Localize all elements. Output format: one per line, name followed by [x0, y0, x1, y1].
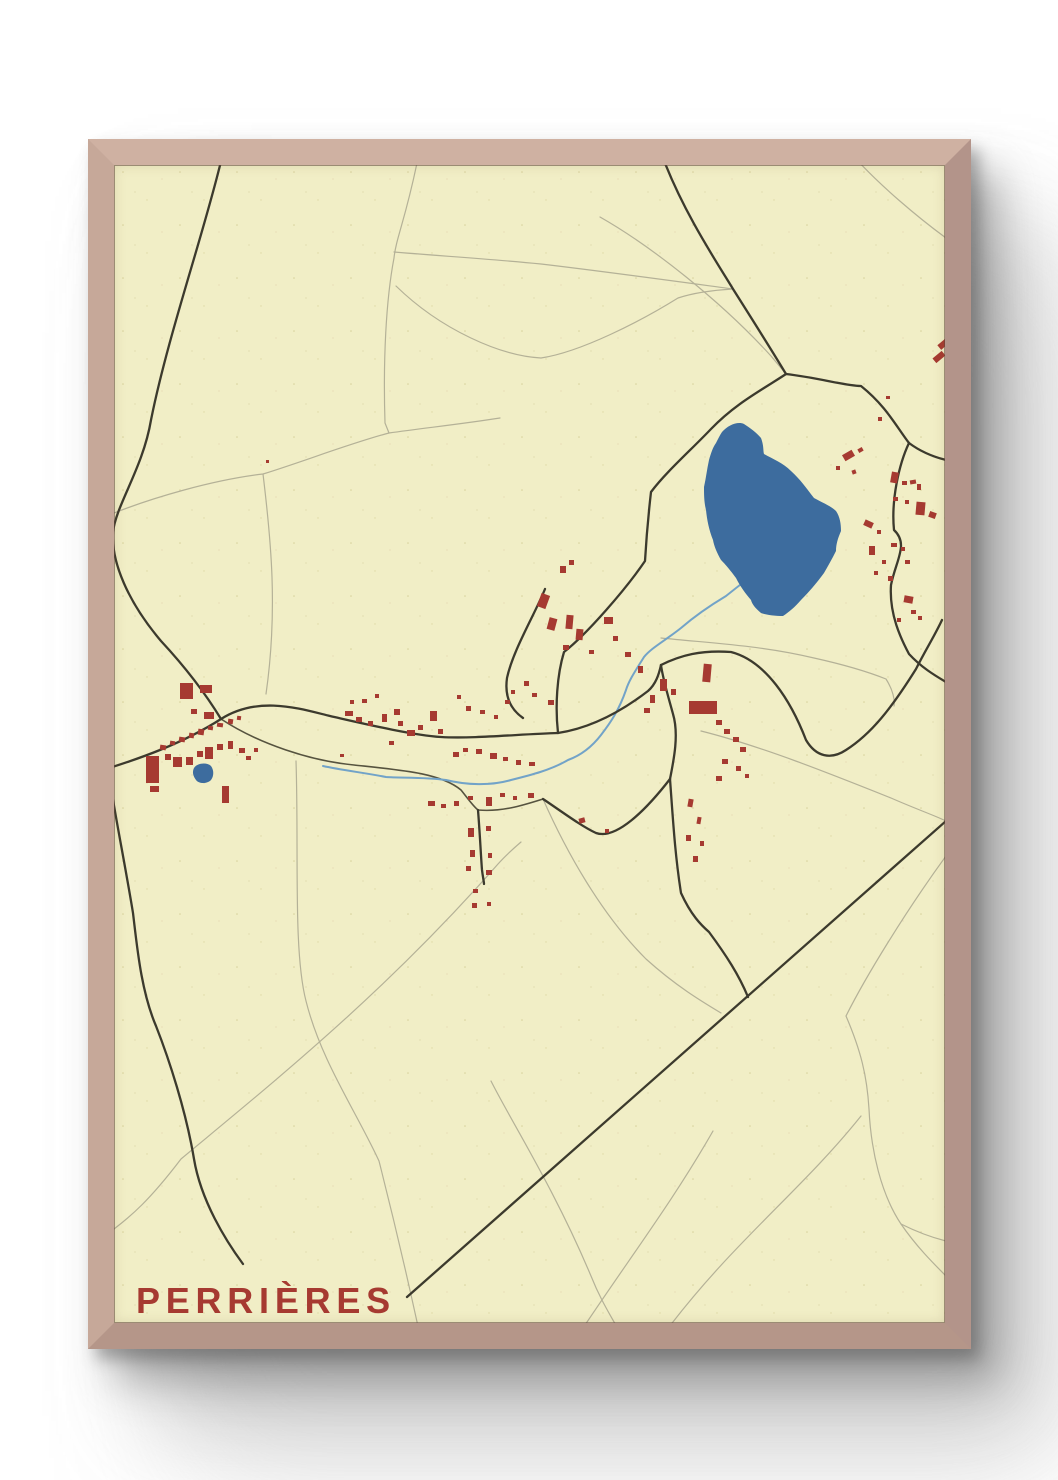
- building: [902, 481, 907, 485]
- building: [589, 650, 594, 654]
- building: [505, 700, 510, 704]
- map-canvas: PERRIÈRES: [114, 165, 945, 1323]
- building: [466, 866, 471, 871]
- building: [722, 759, 728, 764]
- building: [239, 748, 245, 753]
- building: [888, 576, 893, 581]
- building: [350, 700, 354, 704]
- building: [418, 725, 423, 730]
- building: [173, 757, 182, 767]
- building: [179, 737, 186, 743]
- building: [716, 720, 722, 725]
- building: [180, 683, 193, 699]
- building: [453, 752, 459, 757]
- building: [528, 793, 534, 798]
- building: [911, 610, 916, 614]
- building: [165, 754, 171, 760]
- building: [441, 804, 446, 808]
- building: [254, 748, 258, 752]
- building: [472, 903, 477, 908]
- building: [382, 714, 387, 722]
- building: [576, 629, 584, 641]
- building: [463, 748, 468, 752]
- building: [886, 396, 890, 399]
- map-title: PERRIÈRES: [136, 1283, 396, 1319]
- building: [494, 715, 498, 719]
- building: [170, 741, 176, 746]
- building: [428, 801, 435, 806]
- building: [197, 751, 203, 757]
- building: [693, 856, 698, 862]
- building: [186, 757, 193, 765]
- building: [548, 700, 554, 705]
- building: [146, 756, 159, 783]
- building: [918, 616, 922, 620]
- building: [486, 826, 491, 831]
- building: [569, 560, 574, 565]
- building: [740, 747, 746, 752]
- building: [228, 741, 233, 749]
- building: [191, 709, 197, 714]
- building: [917, 484, 921, 490]
- building: [468, 828, 474, 837]
- building: [368, 721, 373, 726]
- building: [237, 716, 242, 721]
- building: [160, 745, 167, 751]
- building: [476, 749, 482, 754]
- building: [644, 708, 650, 713]
- building: [836, 466, 840, 470]
- building: [468, 796, 473, 800]
- paper-texture: [114, 165, 945, 1323]
- building: [891, 543, 897, 547]
- building: [689, 701, 717, 714]
- building: [650, 695, 655, 703]
- building: [457, 695, 461, 699]
- building: [200, 685, 212, 693]
- building: [563, 645, 569, 650]
- building: [473, 889, 478, 893]
- building: [638, 666, 643, 673]
- building: [362, 699, 367, 703]
- building: [375, 694, 379, 698]
- building: [150, 786, 159, 792]
- building: [915, 502, 925, 516]
- building: [724, 729, 730, 734]
- building: [702, 664, 712, 683]
- building: [874, 571, 878, 575]
- building: [198, 729, 205, 736]
- building: [745, 774, 749, 778]
- building: [736, 766, 741, 771]
- building: [905, 500, 909, 504]
- building: [488, 853, 492, 858]
- building: [228, 719, 234, 725]
- building: [560, 566, 566, 573]
- building: [500, 793, 505, 797]
- building: [511, 690, 515, 694]
- building: [438, 729, 443, 734]
- building: [893, 497, 898, 501]
- building: [340, 754, 344, 757]
- building: [189, 733, 195, 739]
- building: [205, 747, 213, 759]
- building: [733, 737, 739, 742]
- building: [625, 652, 631, 657]
- building: [345, 711, 353, 716]
- building: [204, 712, 214, 719]
- building: [686, 835, 691, 841]
- building: [700, 841, 704, 846]
- building: [470, 850, 475, 857]
- building: [503, 757, 508, 761]
- building: [529, 762, 535, 766]
- building: [398, 721, 403, 726]
- building: [524, 681, 529, 686]
- building: [486, 797, 492, 806]
- building: [869, 546, 875, 555]
- building: [222, 786, 229, 803]
- building: [454, 801, 459, 806]
- building: [217, 744, 223, 750]
- building: [217, 723, 223, 728]
- building: [490, 753, 497, 759]
- town-map-svg: [114, 165, 945, 1323]
- building: [516, 760, 521, 765]
- building: [407, 730, 415, 736]
- building: [901, 547, 905, 551]
- building: [897, 618, 901, 622]
- building: [266, 460, 269, 463]
- building: [208, 726, 214, 731]
- building: [671, 689, 676, 695]
- building: [246, 756, 251, 760]
- building: [389, 741, 394, 745]
- building: [466, 706, 471, 711]
- building: [532, 693, 537, 697]
- building: [604, 617, 613, 624]
- building: [905, 560, 910, 564]
- building: [716, 776, 722, 781]
- building: [356, 717, 362, 722]
- building: [878, 417, 882, 421]
- building: [394, 709, 400, 715]
- poster-frame: PERRIÈRES: [88, 139, 971, 1349]
- building: [605, 829, 609, 833]
- building: [486, 870, 492, 875]
- building: [480, 710, 485, 714]
- building: [513, 796, 517, 800]
- building: [613, 636, 618, 641]
- building: [430, 711, 437, 721]
- building: [660, 679, 667, 691]
- building: [487, 902, 491, 906]
- building: [877, 530, 881, 534]
- building: [882, 560, 886, 564]
- building: [565, 615, 573, 630]
